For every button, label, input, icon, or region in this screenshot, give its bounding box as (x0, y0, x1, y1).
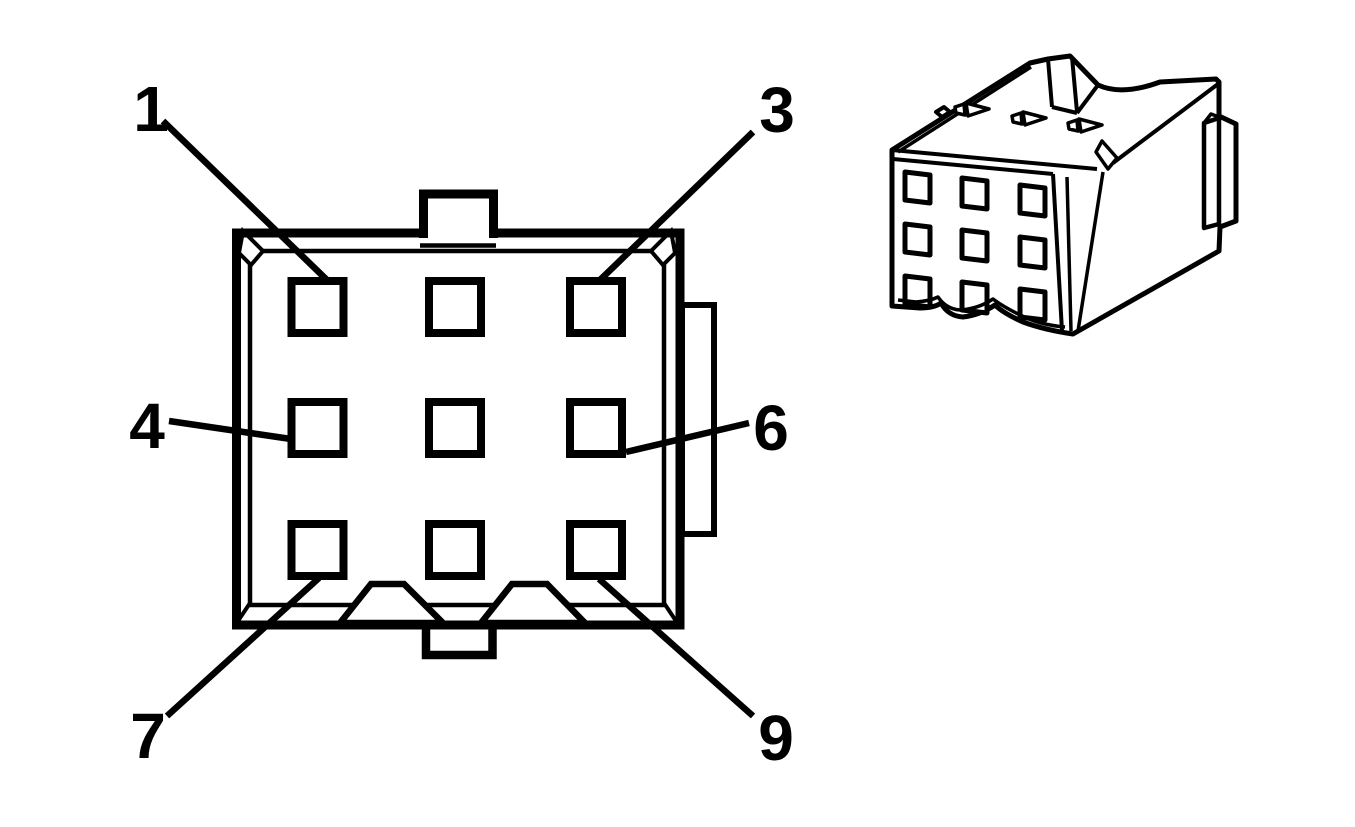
pin-cavity-5 (429, 402, 481, 454)
iso-arrow-2-tail (1012, 113, 1022, 124)
pin-label-4: 4 (129, 390, 165, 462)
pin-cavity-2 (429, 281, 481, 333)
pin-cavity-9 (570, 524, 622, 576)
iso-pin-hole-5 (962, 230, 987, 261)
iso-arrow-1-tail (955, 104, 965, 115)
iso-pin-hole-1 (905, 172, 930, 203)
pin-label-9: 9 (758, 702, 794, 774)
iso-pin-hole-3 (1020, 185, 1045, 216)
pin-label-7: 7 (130, 700, 166, 772)
iso-pin-hole-4 (905, 224, 930, 255)
pin-label-3: 3 (759, 74, 795, 146)
bottom-index-tab (426, 629, 493, 655)
pin-cavity-6 (570, 402, 622, 454)
pin-cavity-7 (292, 524, 344, 576)
iso-edge-notch (936, 107, 950, 117)
iso-pin-hole-2 (962, 178, 987, 209)
pin-label-1: 1 (133, 73, 169, 145)
iso-pin-hole-6 (1020, 237, 1045, 268)
top-lock-tab (424, 194, 494, 238)
connector-diagram: 1 3 4 6 7 9 (0, 0, 1355, 827)
pin-label-6: 6 (753, 392, 789, 464)
pin-cavity-1 (292, 281, 344, 333)
iso-arrow-3-tail (1068, 120, 1078, 131)
connector-diagram-page: 1 3 4 6 7 9 (0, 0, 1355, 827)
pin-cavity-4 (292, 402, 344, 454)
side-rail-tab (682, 305, 714, 534)
pin-cavity-3 (570, 281, 622, 333)
pin-cavity-8 (429, 524, 481, 576)
iso-side-rail-front (1204, 118, 1219, 228)
